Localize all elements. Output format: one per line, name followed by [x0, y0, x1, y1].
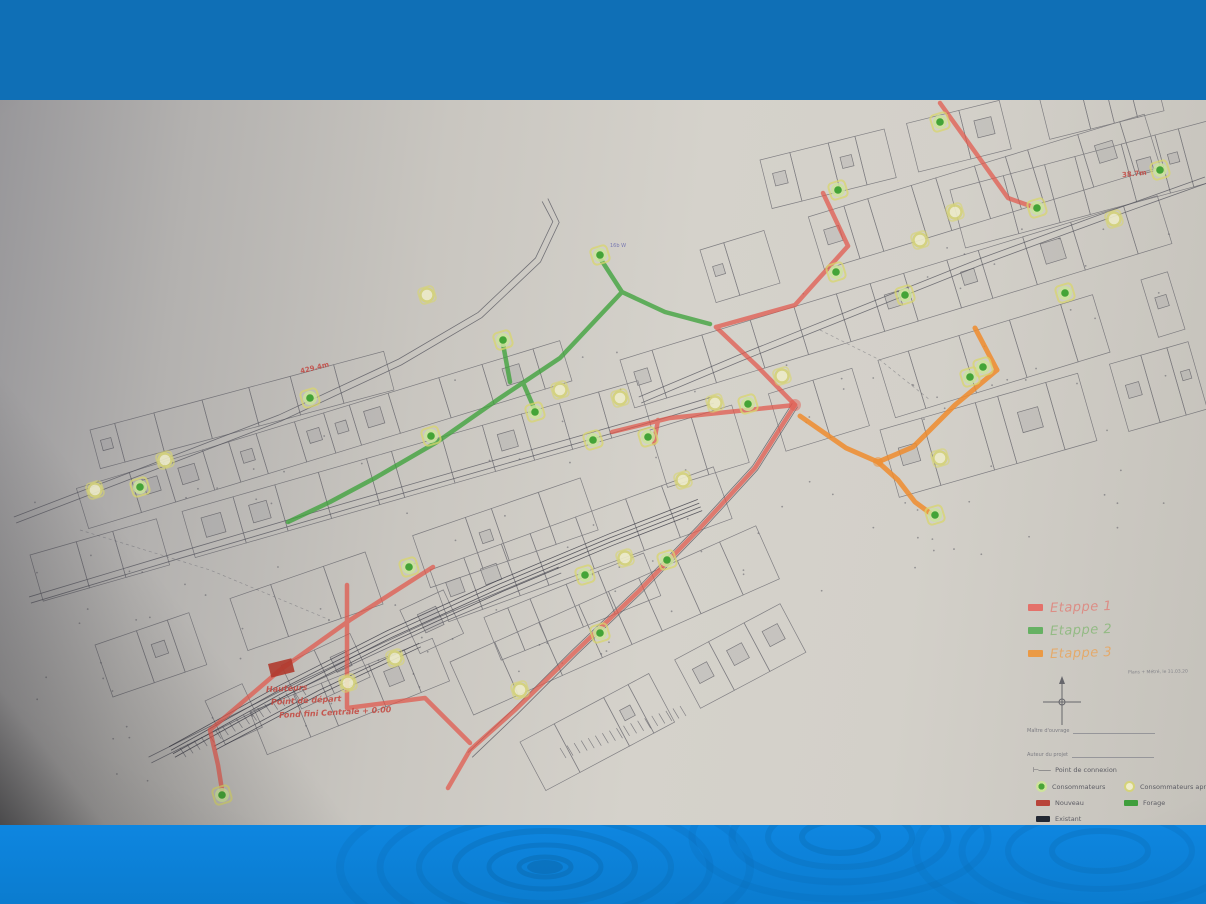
- slide-bottom-band: [0, 825, 1206, 904]
- legend-label: Existant: [1055, 815, 1081, 823]
- etappe-2-swatch: [1028, 627, 1043, 634]
- yellow-consumer-icon: [1124, 781, 1135, 792]
- green-consumer-icon: [1036, 781, 1047, 792]
- plan-date-note: Plans + Métré, le 31.03.20: [1128, 669, 1188, 675]
- map-photo: Etappe 1 Etappe 2 Etappe 3 Plans + Métré…: [0, 100, 1206, 825]
- etappe-3-swatch: [1028, 650, 1043, 657]
- legend-item-consommateurs-2: Consommateurs apr: [1124, 781, 1206, 792]
- etappe-2-label: Etappe 2: [1050, 622, 1113, 639]
- green-swatch-icon: [1124, 800, 1138, 806]
- legend-label: Forage: [1143, 799, 1165, 807]
- water-ripples-icon: [0, 825, 1206, 904]
- presentation-slide: Etappe 1 Etappe 2 Etappe 3 Plans + Métré…: [0, 0, 1206, 904]
- legend-label: Nouveau: [1055, 799, 1084, 807]
- connection-symbol-icon: ⊢——: [1033, 766, 1050, 774]
- legend-label: Point de connexion: [1055, 766, 1117, 774]
- cadastral-map-svg: [0, 100, 1206, 825]
- field-label: Auteur du projet: [1027, 752, 1068, 758]
- etappe-3-label: Etappe 3: [1050, 645, 1113, 662]
- red-swatch-icon: [1036, 800, 1050, 806]
- field-label: Maître d'ouvrage: [1027, 728, 1069, 734]
- legend-item-consommateurs: Consommateurs: [1036, 781, 1105, 792]
- legend-label: Consommateurs apr: [1140, 783, 1206, 791]
- black-swatch-icon: [1036, 816, 1050, 822]
- field-maitre-ouvrage: Maître d'ouvrage: [1027, 728, 1155, 734]
- fill-in-rule: [1073, 730, 1155, 734]
- legend-item-nouveau: Nouveau: [1036, 799, 1084, 807]
- etappe-1-swatch: [1028, 604, 1043, 611]
- legend-label: Consommateurs: [1052, 783, 1105, 791]
- legend-item-existant: Existant: [1036, 815, 1081, 823]
- etappe-1-label: Etappe 1: [1050, 599, 1113, 616]
- fill-in-rule: [1072, 754, 1154, 758]
- legend-item-connexion: ⊢—— Point de connexion: [1033, 766, 1117, 774]
- field-auteur-projet: Auteur du projet: [1027, 752, 1154, 758]
- node-code-label: 16b W: [610, 243, 626, 249]
- stage-legend: Etappe 1 Etappe 2 Etappe 3: [1028, 596, 1112, 665]
- stage-legend-row: Etappe 2: [1028, 619, 1112, 642]
- legend-item-forage: Forage: [1124, 799, 1165, 807]
- stage-legend-row: Etappe 1: [1028, 596, 1112, 619]
- stage-legend-row: Etappe 3: [1028, 642, 1112, 665]
